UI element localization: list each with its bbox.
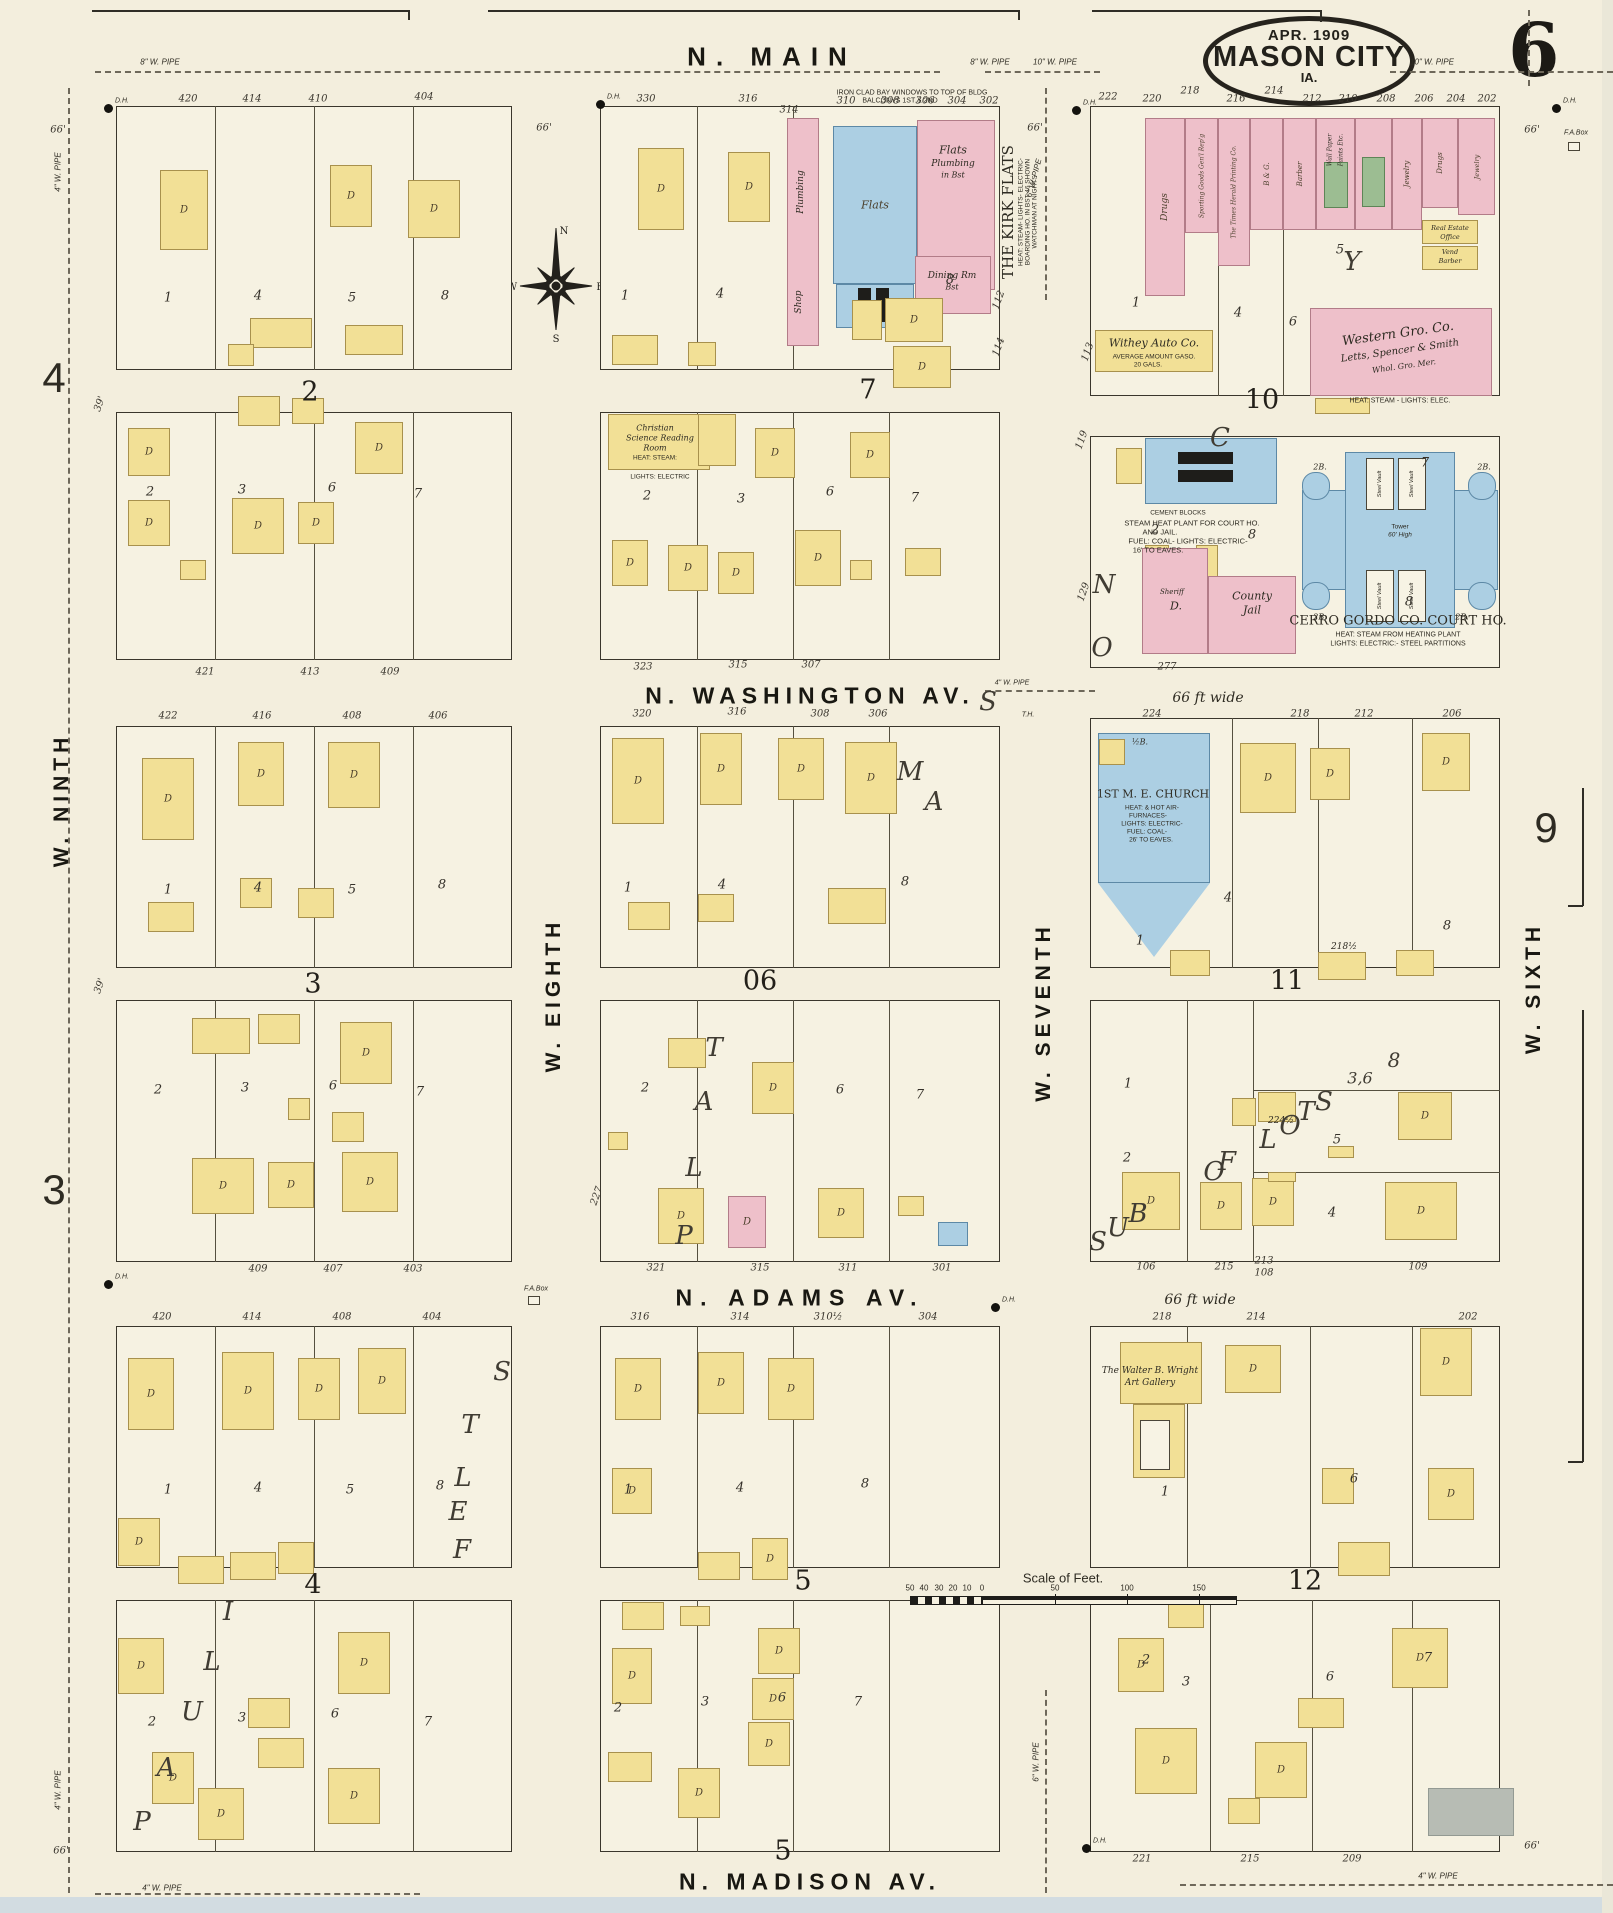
building	[250, 318, 312, 348]
building-label: D	[837, 1208, 845, 1219]
building	[258, 1738, 304, 1768]
map-annotation: Science Reading	[626, 434, 694, 443]
sheet-border-line	[488, 10, 1018, 12]
sanborn-map-sheet: APR. 1909 MASON CITY IA. 6 N E S W	[0, 0, 1613, 1913]
map-annotation: The Walter B. Wright	[1102, 1366, 1198, 1376]
adjacent-sheet-number: 3	[42, 1166, 65, 1214]
building-label: D	[217, 1809, 225, 1820]
map-annotation: LIGHTS: ELECTRIC-	[1121, 821, 1182, 828]
dwelling: D	[700, 733, 742, 805]
lot-number: 3	[1182, 1675, 1190, 1690]
map-annotation: Barber	[1439, 257, 1462, 265]
lot-number: 7	[424, 1715, 432, 1730]
building: B & G.	[1250, 118, 1283, 230]
dwelling: D	[638, 148, 684, 230]
map-annotation: HEAT: STEAM - LIGHTS: ELEC.	[1349, 398, 1450, 405]
water-pipe-line	[1390, 71, 1613, 73]
street-address: 66'	[1524, 125, 1539, 136]
dwelling: D	[1310, 748, 1350, 800]
map-annotation: 2B.	[1477, 463, 1491, 472]
lot-number: 7	[916, 1088, 924, 1103]
building	[192, 1018, 250, 1054]
subdivision-letter: A	[157, 1753, 176, 1783]
lot-number: 1	[624, 1483, 632, 1498]
map-annotation: D.	[1170, 600, 1182, 613]
street-address: 209	[1342, 1854, 1361, 1865]
block-number: 10	[1245, 385, 1279, 416]
lot-number: 6	[826, 485, 834, 500]
building	[1468, 582, 1496, 610]
lot-number: 7	[854, 1695, 862, 1710]
street-address: 407	[323, 1264, 342, 1275]
map-annotation: Real Estate	[1431, 224, 1469, 232]
building-label: D	[717, 1378, 725, 1389]
water-pipe-line	[95, 1893, 420, 1895]
street-address: 39'	[92, 395, 108, 413]
street-address: 330	[636, 94, 655, 105]
building-label: D	[164, 794, 172, 805]
street-name: N. ADAMS AV.	[676, 1285, 925, 1312]
map-annotation: Paints Etc.	[1338, 134, 1345, 167]
map-annotation: FUEL: COAL- LIGHTS: ELECTRIC-	[1128, 537, 1247, 546]
street-address: 409	[248, 1264, 267, 1275]
subdivision-letter: I	[223, 1597, 233, 1627]
lot-number: 6	[1326, 1670, 1334, 1685]
lot-line	[413, 726, 414, 968]
building	[1228, 1798, 1260, 1824]
dwelling: D	[612, 1648, 652, 1704]
dwelling: D	[358, 1348, 406, 1414]
fire-hydrant-dot	[596, 100, 605, 109]
lot-number: 4	[254, 881, 262, 896]
lot-line	[314, 1000, 315, 1262]
street-address: 420	[152, 1312, 171, 1323]
street-address: 204	[1446, 94, 1465, 105]
map-annotation: 10" W. PIPE	[1033, 58, 1077, 67]
lot-number: 1	[164, 883, 172, 898]
sheet-border-line	[408, 10, 410, 20]
city-block	[600, 1600, 1000, 1852]
building	[1140, 1420, 1170, 1470]
street-address: 406	[428, 711, 447, 722]
building	[828, 888, 886, 924]
building-label: D	[254, 521, 262, 532]
street-address: 310½	[814, 1312, 843, 1323]
building-label: D	[775, 1646, 783, 1657]
building-label: D	[1162, 1756, 1170, 1767]
map-annotation: Plumbing	[931, 159, 974, 169]
jewelry-store: Jewelry	[1392, 118, 1422, 230]
street-address: 206	[1442, 709, 1461, 720]
map-annotation: Steel Vault	[1377, 471, 1383, 497]
map-title-oval: APR. 1909 MASON CITY IA.	[1203, 16, 1415, 106]
street-address: 220	[1142, 94, 1161, 105]
building-label: D	[732, 568, 740, 579]
lot-line	[413, 106, 414, 370]
lot-number: 4	[1234, 306, 1242, 321]
street-address: 304	[918, 1312, 937, 1323]
water-pipe-line	[68, 88, 70, 1893]
dwelling: D	[268, 1162, 314, 1208]
dwelling: D	[612, 738, 664, 824]
dwelling: D	[408, 180, 460, 238]
street-address: 218	[1152, 1312, 1171, 1323]
dwelling: D	[1398, 1092, 1452, 1140]
building-label: D	[1264, 773, 1272, 784]
lot-number: 8	[436, 1479, 444, 1494]
building-label: D	[350, 770, 358, 781]
map-annotation: 4" W. PIPE	[1418, 1872, 1457, 1881]
map-annotation: Room	[643, 444, 666, 453]
subdivision-letter: L	[1259, 1125, 1276, 1155]
subdivision-letter: A	[695, 1087, 714, 1117]
lot-number: 8	[946, 273, 954, 288]
dwelling: D	[1385, 1182, 1457, 1240]
lot-number: 6	[329, 1079, 337, 1094]
building-label: D	[315, 1384, 323, 1395]
building-label: D	[1269, 1197, 1277, 1208]
map-annotation: THE KIRK FLATS	[999, 145, 1017, 279]
dwelling: D	[678, 1768, 720, 1818]
street-address: 323	[633, 662, 652, 673]
subdivision-letter: E	[449, 1497, 468, 1527]
building	[238, 396, 280, 426]
lot-line	[413, 1600, 414, 1852]
lot-number: 5	[348, 291, 356, 306]
building	[332, 1112, 364, 1142]
building-label: D	[695, 1788, 703, 1799]
lot-number: 1	[1132, 296, 1140, 311]
lot-number: 8	[441, 289, 449, 304]
dwelling: D	[748, 1722, 790, 1766]
building-label: D	[1417, 1206, 1425, 1217]
building-label: D	[350, 1791, 358, 1802]
map-annotation: HEAT: & HOT AIR-	[1125, 805, 1179, 812]
drugs-store: Drugs	[1145, 118, 1185, 296]
subdivision-letter: O	[1091, 633, 1112, 663]
building	[1302, 582, 1330, 610]
dwelling: D	[128, 428, 170, 476]
street-address: 403	[403, 1264, 422, 1275]
subdivision-letter: U	[181, 1697, 203, 1727]
building	[258, 1014, 300, 1044]
building	[905, 548, 941, 576]
building	[1168, 1602, 1204, 1628]
subdivision-letter: S	[1315, 1087, 1333, 1117]
building	[1232, 1098, 1256, 1126]
map-annotation: AND JAIL.	[1142, 528, 1177, 537]
lot-number: 3	[238, 483, 246, 498]
lot-number: 6	[836, 1083, 844, 1098]
dwelling: D	[298, 502, 334, 544]
building-label: D	[745, 182, 753, 193]
street-address: 414	[242, 94, 261, 105]
map-annotation: in Bst	[941, 171, 964, 180]
block-number: 4	[304, 1570, 321, 1601]
building	[1362, 157, 1385, 207]
fire-hydrant-label: D.H.	[115, 98, 129, 105]
building	[345, 325, 403, 355]
street-address: 119	[1074, 429, 1091, 451]
map-annotation: 20 GALS.	[1134, 362, 1162, 369]
map-annotation: LIGHTS: ELECTRIC	[630, 474, 689, 481]
dwelling: D	[330, 165, 372, 227]
building-label: D	[360, 1658, 368, 1669]
street-address: 311	[838, 1263, 857, 1274]
lot-line	[1412, 1326, 1413, 1568]
map-annotation: FUEL: COAL-	[1127, 829, 1167, 836]
street-name: W. EIGHTH	[542, 918, 566, 1073]
building-label: D	[219, 1181, 227, 1192]
map-annotation: LIGHTS: ELECTRIC:- STEEL PARTITIONS	[1330, 641, 1465, 648]
lot-number: 2	[641, 1081, 649, 1096]
dwelling: D	[728, 152, 770, 222]
lot-number: 3	[241, 1081, 249, 1096]
dwelling: D	[198, 1788, 244, 1840]
map-annotation: Office	[1440, 233, 1460, 241]
building-label: D	[347, 191, 355, 202]
street-address: 306	[915, 96, 934, 107]
building: Drugs	[1422, 118, 1458, 208]
building	[1468, 472, 1496, 500]
lot-number: 2	[1142, 1653, 1150, 1668]
building-label: D	[918, 362, 926, 373]
lot-line	[215, 1326, 216, 1568]
street-address: 222	[1098, 92, 1117, 103]
map-annotation: Vend	[1442, 248, 1458, 256]
building	[1116, 448, 1142, 484]
map-annotation: Art Gallery	[1125, 1378, 1175, 1388]
street-address: 277	[1157, 662, 1176, 673]
lot-number: 6	[328, 481, 336, 496]
compass-n: N	[560, 226, 569, 237]
map-annotation: 4" W. PIPE	[54, 152, 63, 191]
fire-hydrant-label: D.H.	[1563, 98, 1577, 105]
map-annotation: 60' High	[1388, 532, 1412, 539]
block-number: 11	[1270, 966, 1304, 997]
street-address: 221	[1132, 1854, 1151, 1865]
building-label: D	[145, 518, 153, 529]
building-label: D	[1249, 1364, 1257, 1375]
building-label: B & G.	[1263, 162, 1271, 185]
lot-line	[697, 106, 698, 370]
dwelling: D	[1428, 1468, 1474, 1520]
building-label: D	[867, 773, 875, 784]
lot-line	[314, 106, 315, 370]
map-annotation: HEAT: STEAM FROM HEATING PLANT	[1336, 632, 1461, 639]
sheet-border-line	[92, 10, 408, 12]
street-address: 321	[646, 1263, 665, 1274]
building	[1328, 1146, 1354, 1158]
building-label: D	[797, 764, 805, 775]
lot-number: 7	[911, 491, 919, 506]
street-address: 410	[308, 94, 327, 105]
fire-hydrant-label: D.H.	[1083, 100, 1097, 107]
dwelling: D	[222, 1352, 274, 1430]
street-address: 106	[1136, 1262, 1155, 1273]
building-label: Drugs	[1436, 152, 1444, 174]
building	[1099, 739, 1125, 765]
building	[148, 902, 194, 932]
street-address: 421	[195, 667, 214, 678]
dwelling: D	[1252, 1178, 1294, 1226]
map-annotation: 1ST M. E. CHURCH	[1097, 788, 1209, 801]
building-label: D	[743, 1217, 751, 1228]
lot-number: 1	[621, 289, 629, 304]
scale-label: 100	[1120, 1584, 1133, 1593]
map-annotation: Sheriff	[1160, 588, 1184, 596]
street-address: 316	[630, 1312, 649, 1323]
building-label: D	[657, 184, 665, 195]
dwelling: D	[718, 552, 754, 594]
scale-label: 20	[949, 1584, 958, 1593]
fire-hydrant-dot	[1082, 1844, 1091, 1853]
scale-label: 10	[963, 1584, 972, 1593]
dwelling: D	[298, 1358, 340, 1420]
lot-line	[413, 1000, 414, 1262]
dwelling: D	[128, 500, 170, 546]
dwelling: D	[850, 432, 890, 478]
building-label: D	[287, 1180, 295, 1191]
map-annotation: 6" W. PIPE	[1032, 1742, 1041, 1781]
street-address: 320	[632, 709, 651, 720]
lot-number: 8	[901, 875, 909, 890]
building	[698, 1552, 740, 1580]
building-label: D	[257, 769, 265, 780]
lot-number: 2	[148, 1715, 156, 1730]
subdivision-letter: 3,6	[1347, 1069, 1372, 1088]
lot-line	[1210, 1600, 1211, 1852]
map-annotation: 2B.	[1313, 463, 1327, 472]
street-address: 214	[1246, 1312, 1265, 1323]
subdivision-letter: Y	[1343, 247, 1360, 277]
lot-number: 5	[1333, 1133, 1341, 1148]
lot-number: 5	[348, 883, 356, 898]
dwelling: D	[1392, 1628, 1448, 1688]
map-annotation: Jail	[1243, 604, 1261, 617]
building	[230, 1552, 276, 1580]
building-label: D	[814, 553, 822, 564]
lot-number: 1	[164, 1483, 172, 1498]
building-label: D	[766, 1554, 774, 1565]
block-number: 12	[1288, 1566, 1322, 1597]
building	[668, 1038, 706, 1068]
street-address: 66'	[50, 125, 65, 136]
lot-number: 6	[331, 1707, 339, 1722]
building	[608, 1752, 652, 1782]
building	[852, 300, 882, 340]
dwelling: D	[698, 1352, 744, 1414]
building-label: D	[769, 1694, 777, 1705]
street-address: 316	[738, 94, 757, 105]
water-pipe-line	[985, 71, 1100, 73]
subdivision-letter: S	[1089, 1227, 1107, 1257]
building	[1318, 952, 1366, 980]
dwelling: D	[338, 1632, 390, 1694]
map-annotation: 26' TO EAVES.	[1129, 837, 1173, 844]
dwelling: D	[778, 738, 824, 800]
block-number: 5	[774, 1836, 791, 1867]
lot-number: 3	[737, 492, 745, 507]
street-address: 213	[1254, 1256, 1273, 1267]
building-label: D	[787, 1384, 795, 1395]
street-address: 404	[414, 92, 433, 103]
street-address: 413	[300, 667, 319, 678]
building-label: D	[866, 450, 874, 461]
block-number: 3	[304, 969, 321, 1000]
sheet-border-line	[1018, 10, 1020, 20]
building-label: D	[717, 764, 725, 775]
building-label: D	[1277, 1765, 1285, 1776]
street-address: 208	[1376, 94, 1395, 105]
lot-number: 7	[1421, 456, 1429, 471]
map-annotation: Wall Paper	[1327, 134, 1334, 167]
fire-alarm-box	[528, 1296, 540, 1305]
lot-number: 4	[1224, 891, 1232, 906]
lot-number: 1	[1124, 1077, 1132, 1092]
fire-hydrant-label: D.H.	[115, 1274, 129, 1281]
subdivision-letter: S	[979, 687, 997, 717]
building-label: D	[771, 448, 779, 459]
dwelling: D	[232, 498, 284, 554]
lot-line	[889, 1326, 890, 1568]
street-address: 66'	[1027, 123, 1042, 134]
times-herald-printing: The Times Herald Printing Co.	[1218, 118, 1250, 266]
water-pipe-line	[1528, 10, 1530, 86]
map-annotation: 4" W. PIPE	[995, 680, 1030, 687]
sheet-border-line	[1568, 1461, 1583, 1463]
building	[628, 902, 670, 930]
building-label: Sporting Goods Gen'l Rep'g	[1198, 133, 1205, 217]
block-number: 2	[301, 377, 318, 408]
dwelling: D	[328, 1768, 380, 1824]
lot-number: 1	[1136, 934, 1144, 949]
subdivision-letter: U	[1107, 1213, 1129, 1243]
lot-number: 3	[238, 1711, 246, 1726]
map-annotation: ½B.	[1132, 738, 1148, 747]
street-address: 214	[1264, 86, 1283, 97]
map-annotation: 8" W. PIPE	[140, 58, 179, 67]
dwelling: D	[340, 1022, 392, 1084]
street-address: 314	[730, 1312, 749, 1323]
street-address: 409	[380, 667, 399, 678]
map-annotation: Plumbing	[796, 170, 806, 213]
lot-number: 7	[416, 1085, 424, 1100]
street-address: 218	[1180, 86, 1199, 97]
dwelling: D	[768, 1358, 814, 1420]
building	[298, 888, 334, 918]
barber-shop: Barber	[1283, 118, 1316, 230]
sheet-number: 6	[1508, 8, 1560, 94]
street-address: 108	[1254, 1268, 1273, 1279]
street-address: 310	[836, 96, 855, 107]
building	[1338, 1542, 1390, 1576]
subdivision-letter: L	[454, 1463, 471, 1493]
lot-number: 2	[146, 485, 154, 500]
street-address: 308	[880, 96, 899, 107]
building-label: D	[378, 1376, 386, 1387]
building: Jewelry	[1458, 118, 1495, 215]
dwelling: D	[818, 1188, 864, 1238]
block-number: 06	[743, 966, 777, 997]
map-annotation: F.A.Box	[1564, 130, 1588, 137]
dwelling: D	[615, 1358, 661, 1420]
street-address: 202	[1458, 1312, 1477, 1323]
sporting-goods-store: Sporting Goods Gen'l Rep'g	[1185, 118, 1218, 233]
map-annotation: F.A.Box	[524, 1286, 548, 1293]
dwelling: D	[1255, 1742, 1307, 1798]
building-label: D	[765, 1739, 773, 1750]
